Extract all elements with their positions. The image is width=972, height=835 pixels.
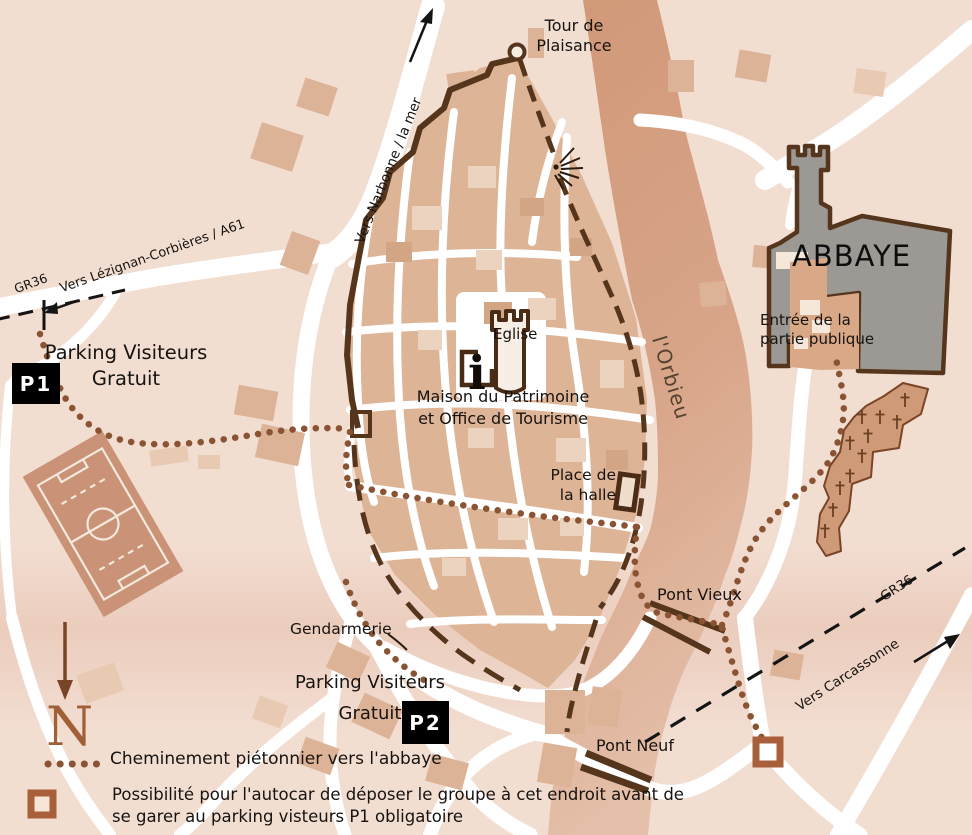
label-tour-de-plaisance: Tour de Plaisance: [500, 16, 648, 57]
building: [198, 455, 220, 469]
building: [668, 60, 694, 92]
building: [853, 68, 886, 97]
building: [545, 690, 585, 734]
label-pont-vieux: Pont Vieux: [657, 585, 742, 605]
label-abbaye: ABBAYE: [792, 238, 911, 275]
label-gendarmerie: Gendarmerie: [290, 620, 392, 640]
legend-dropoff-text: Possibilité pour l'autocar de déposer le…: [112, 784, 684, 829]
legend-dropoff-icon: [31, 793, 53, 815]
building: [699, 281, 727, 307]
label-entree-partie-publique: Entrée de la partie publique: [760, 311, 874, 349]
town-map: i: [0, 0, 972, 835]
halle-marker: [616, 474, 639, 510]
north-letter: N: [46, 692, 93, 761]
label-parking-p1: Parking Visiteurs Gratuit: [36, 340, 216, 393]
parking-p1-badge: P1: [12, 363, 60, 404]
label-eglise: Eglise: [493, 325, 537, 344]
label-place-de-la-halle: Place de la halle: [534, 465, 616, 505]
building: [735, 49, 771, 82]
building: [537, 742, 577, 787]
label-pont-neuf: Pont Neuf: [596, 736, 674, 756]
label-maison-du-patrimoine: Maison du Patrimoine et Office de Touris…: [408, 386, 598, 429]
building: [588, 686, 623, 728]
parking-p2-badge: P2: [402, 701, 449, 744]
eglise-building: [492, 311, 528, 393]
legend-path-text: Cheminement piétonnier vers l'abbaye: [110, 749, 442, 771]
bus-dropoff-marker: [756, 740, 780, 764]
